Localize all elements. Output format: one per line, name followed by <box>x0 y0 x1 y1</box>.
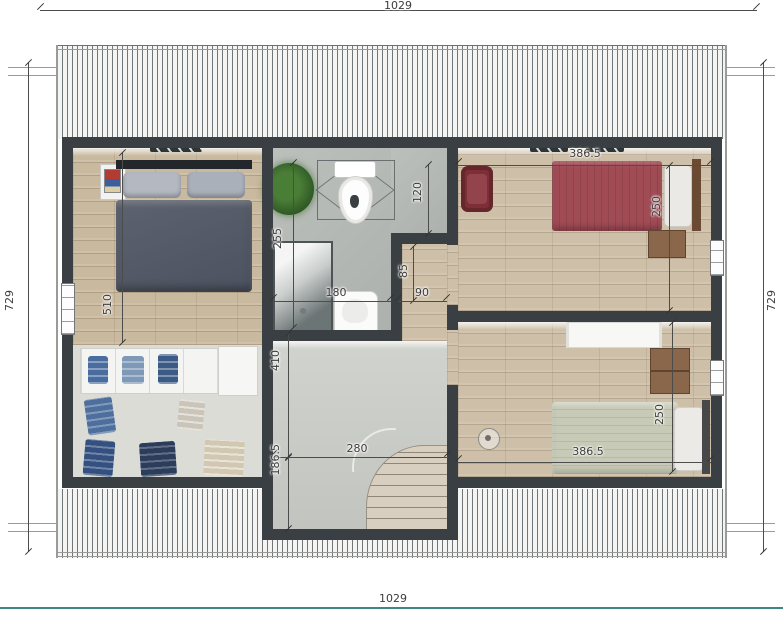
eave-mark <box>726 67 775 68</box>
dim-label-left: 729 <box>4 290 16 311</box>
roof-edge-right <box>725 45 727 558</box>
master-bed-pillow <box>187 172 245 198</box>
dim-label-bedroom-tr-width: 386.5 <box>563 148 607 160</box>
wall-bathroom-south <box>262 330 402 341</box>
dim-label-bedroom-tr-depth: 250 <box>651 196 663 217</box>
dim-label-bedroom-br-depth: 250 <box>654 404 666 425</box>
wall-hall-right-a <box>447 137 458 245</box>
dim-line-bathroom-depth <box>293 162 294 328</box>
dim-line-stair-bay-width <box>273 457 448 458</box>
eave-mark <box>8 523 57 524</box>
clothes-pile <box>177 399 206 432</box>
wall-south-left <box>62 477 273 488</box>
roof-top-eave-line <box>57 49 727 50</box>
wall-stair-bay-south <box>262 529 458 540</box>
doorway-bedroom-bottom-right <box>447 330 458 385</box>
dim-line-master-width <box>122 152 123 343</box>
eave-mark <box>726 75 775 76</box>
wall-east <box>711 137 722 488</box>
wall-face <box>273 341 447 349</box>
wall-south-right <box>447 477 722 488</box>
ceiling-lamp-bulb <box>485 435 491 441</box>
dim-label-stair-bay-width: 280 <box>338 443 376 455</box>
dim-label-master-width: 510 <box>102 294 114 315</box>
roof-bottom-eave-line1 <box>57 552 727 553</box>
roof-edge-left <box>56 45 58 558</box>
dim-line-bedroom-tr-depth <box>669 165 670 311</box>
dim-label-bathroom-depth: 255 <box>272 228 284 249</box>
shower-drain <box>300 308 306 314</box>
desk <box>566 322 662 348</box>
eave-mark <box>8 75 57 76</box>
cabinet-bottom-right <box>650 348 690 394</box>
folded-clothes <box>88 356 108 384</box>
folded-clothes <box>122 356 144 384</box>
dim-label-landing-depth: 85 <box>398 264 410 278</box>
bidet-seat <box>342 299 368 323</box>
window-east-bottom <box>710 360 724 396</box>
wall-bathroom-inner-h <box>391 233 458 244</box>
clothes-pile <box>84 396 117 436</box>
window-east-top <box>710 240 724 276</box>
dim-label-hall-depth: 410 <box>270 350 282 371</box>
eave-mark <box>726 531 775 532</box>
dim-label-landing-width: 90 <box>406 287 438 299</box>
folded-clothes <box>158 354 178 384</box>
master-bed <box>116 160 252 292</box>
dim-label-bedroom-br-width: 386.5 <box>566 446 610 458</box>
dim-line-shower-width <box>273 301 391 302</box>
bed-top-right-headboard <box>692 159 701 231</box>
armchair-seat <box>467 174 487 204</box>
dim-line-bedroom-tr-width <box>458 165 711 166</box>
dim-line-hall-depth <box>288 333 289 457</box>
wall-bathroom-inner-v <box>391 233 402 341</box>
dim-label-nook-depth: 120 <box>412 182 424 203</box>
dim-label-bottom: 1029 <box>363 593 423 605</box>
clothes-pile <box>139 441 177 477</box>
dim-label-right: 729 <box>766 290 778 311</box>
master-bed-pillow <box>123 172 181 198</box>
eave-mark <box>8 531 57 532</box>
dim-line-nook-depth <box>428 164 429 234</box>
clothes-pile <box>82 439 115 477</box>
window-west <box>61 283 75 335</box>
dim-line-left <box>28 62 29 552</box>
dim-line-bedroom-br-width <box>458 462 711 463</box>
master-bed-duvet <box>116 200 252 292</box>
dim-label-stair-bay-depth: 186.5 <box>270 444 282 476</box>
dim-label-shower-width: 180 <box>318 287 354 299</box>
toilet-flush <box>350 195 359 208</box>
dim-label-top: 1029 <box>368 0 428 12</box>
dim-line-right <box>763 62 764 552</box>
floor-plan: 1029 1029 729 729 510 255 120 85 90 180 … <box>0 0 783 617</box>
master-bed-headboard <box>116 160 252 169</box>
eave-mark <box>726 523 775 524</box>
wall-hall-right-b <box>447 305 458 330</box>
wall-hall-right-c <box>447 385 458 540</box>
dim-line-bedroom-br-depth <box>672 322 673 472</box>
wardrobe-cabinet <box>218 346 258 396</box>
dim-line-bottom <box>0 607 783 609</box>
dim-line-stair-bay-depth <box>288 457 289 529</box>
dim-line-landing-width <box>398 301 447 302</box>
clothes-pile <box>203 439 245 477</box>
roof-bottom-eave-line2 <box>57 556 727 557</box>
nightstand-top-right <box>648 230 686 258</box>
wall-north <box>62 137 722 148</box>
roof-top <box>57 45 727 139</box>
bed-top-right-duvet <box>552 161 662 231</box>
eave-mark <box>8 67 57 68</box>
